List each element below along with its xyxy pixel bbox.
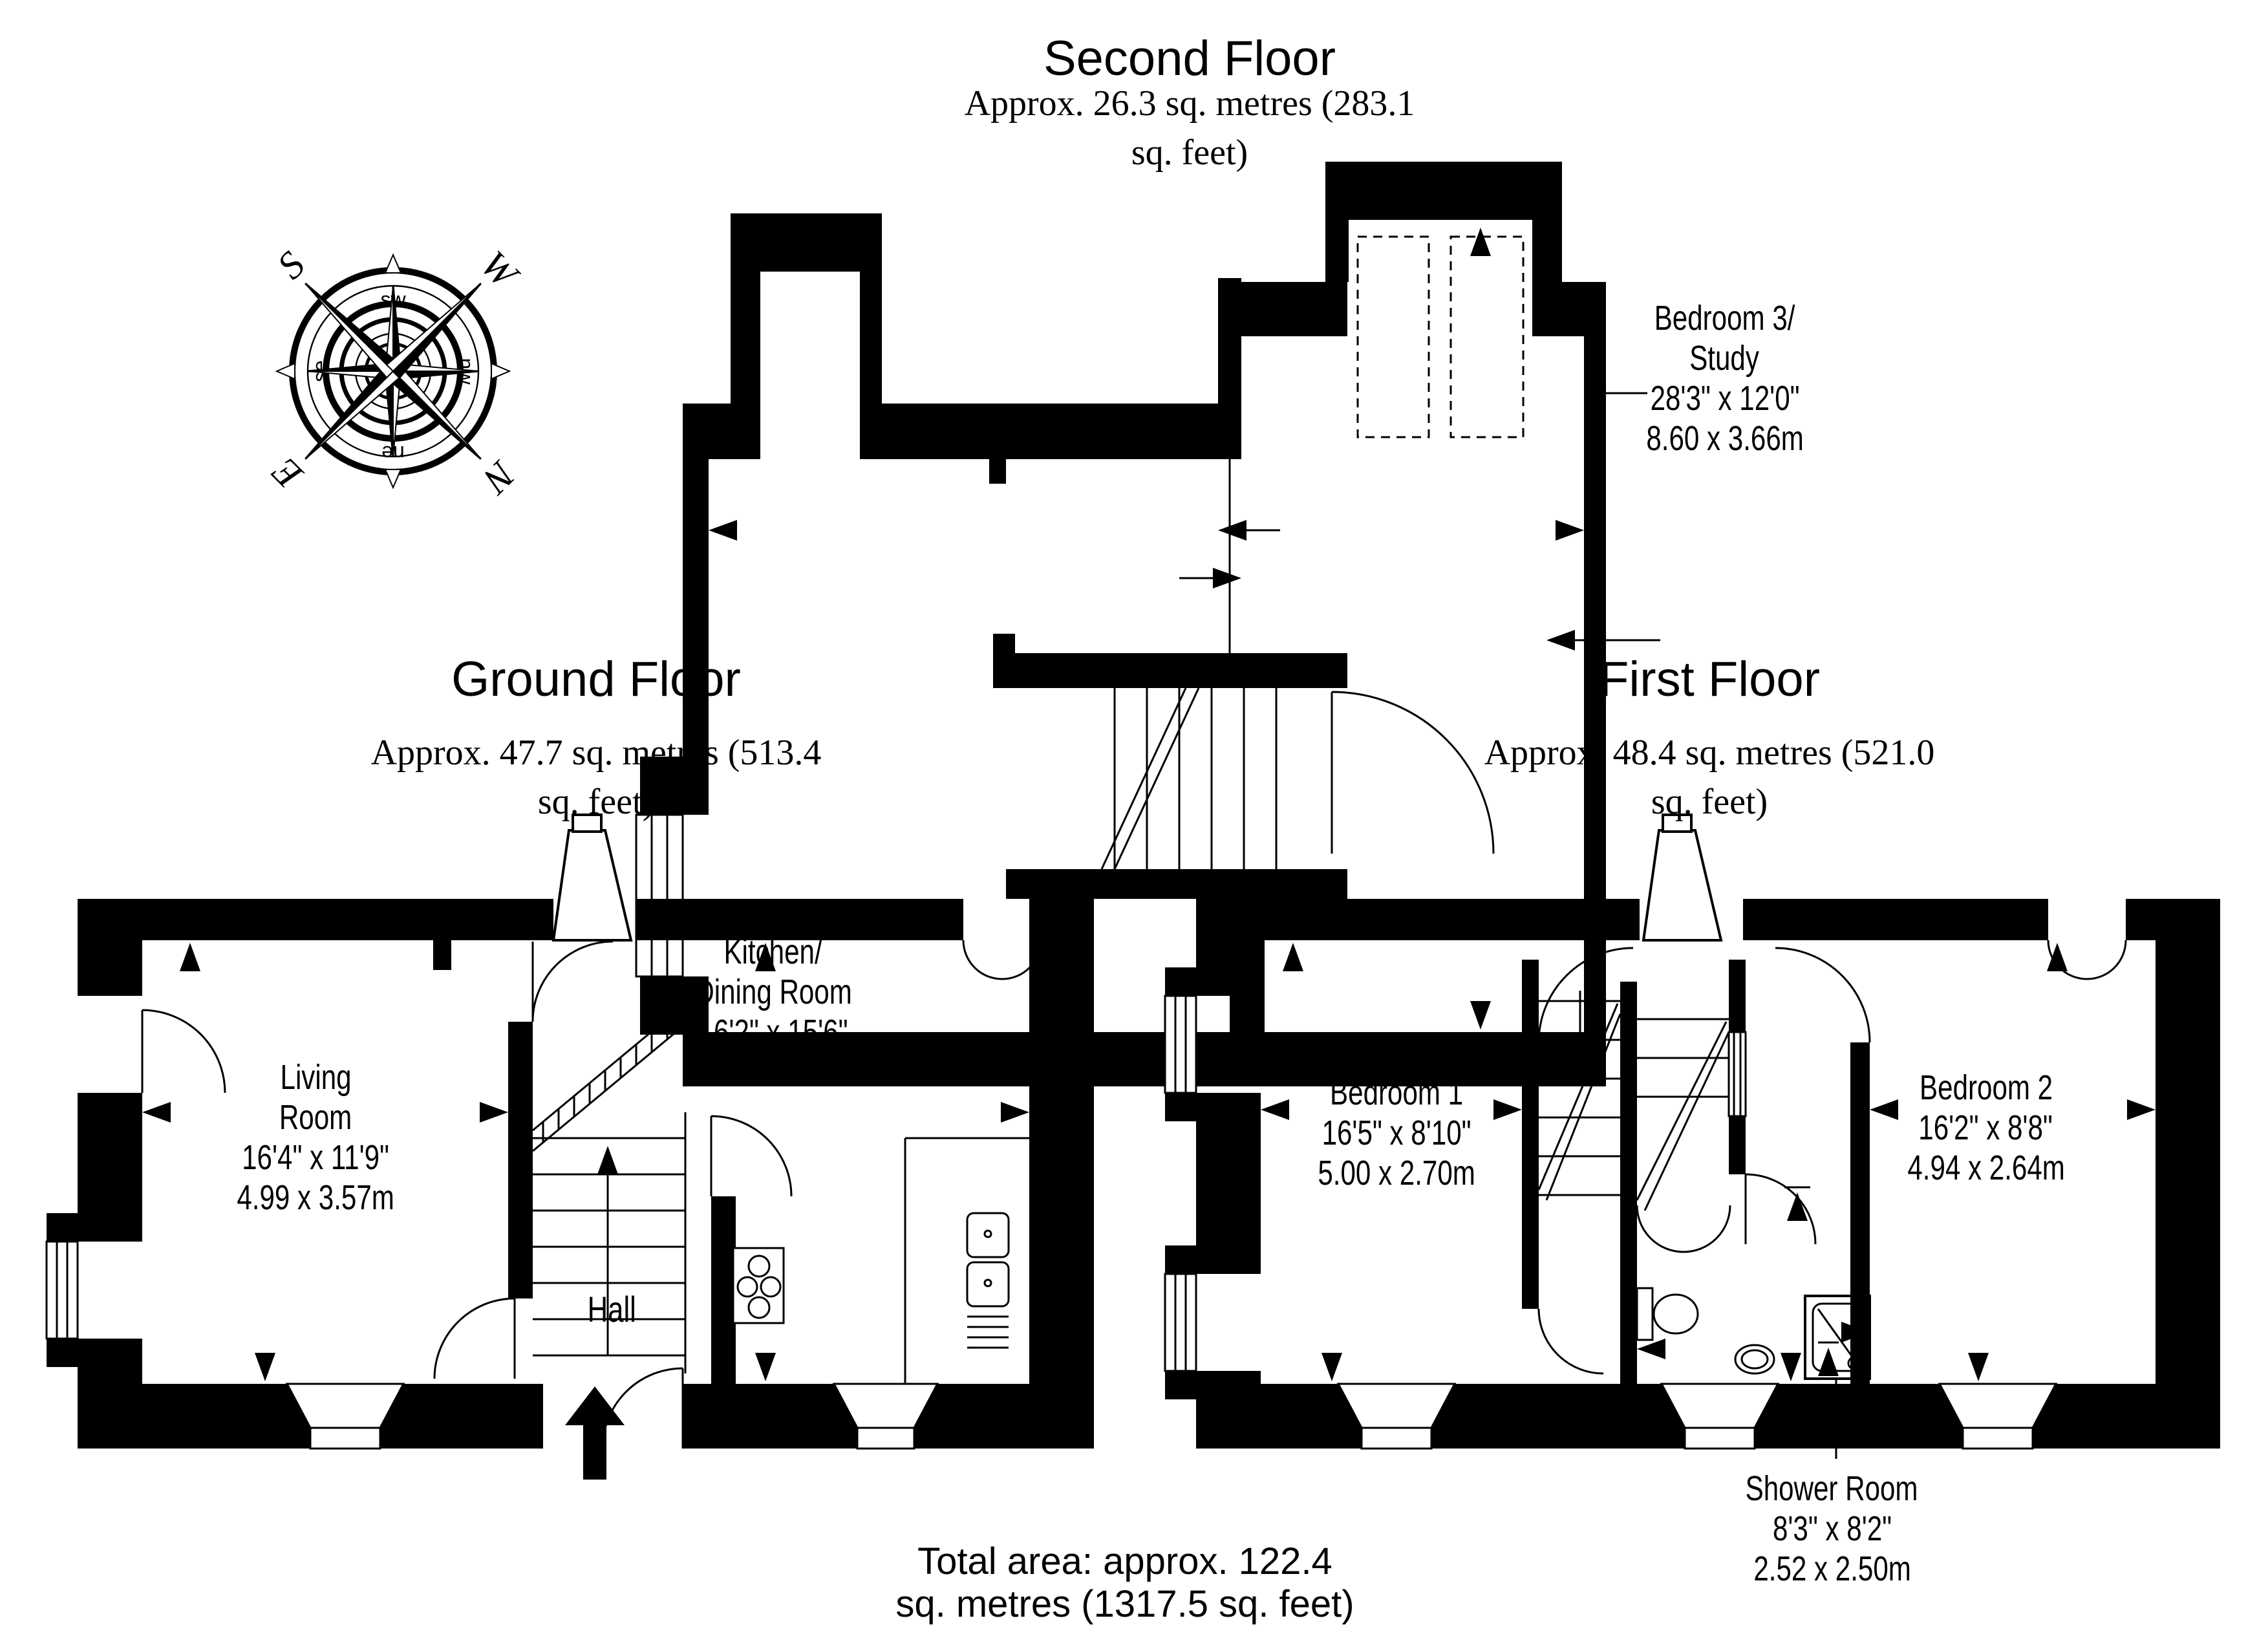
dimension-arrow-down — [255, 1353, 275, 1381]
wall-top — [1743, 899, 2048, 940]
bedroom3-label: Bedroom 3/ Study 28'3" x 12'0" 8.60 x 3.… — [1492, 299, 1958, 459]
sink-drain — [985, 1280, 991, 1286]
room-name: Bedroom 1 — [1164, 1073, 1629, 1114]
basin-bowl — [1742, 1350, 1768, 1368]
dimension-arrow-down — [1321, 1353, 1342, 1381]
kitchen-fittings — [733, 1138, 1029, 1384]
dimension-arrow-left — [1637, 1339, 1665, 1359]
sink-bowl — [967, 1213, 1009, 1257]
room-dims-metric: 4.94 x 2.64m — [1753, 1148, 2219, 1189]
wall-window-cap — [1165, 967, 1196, 996]
room-name: Kitchen/ — [540, 932, 1006, 973]
window-bay-west-lower — [47, 1242, 78, 1339]
room-dims-metric: 2.52 x 2.50m — [1599, 1549, 2065, 1589]
toilet-cistern — [1637, 1288, 1653, 1340]
room-dims-imperial: 16'2" x 8'8" — [1753, 1108, 2219, 1148]
first-floor-title: First Floor — [1477, 652, 1942, 709]
dimension-arrow-up — [2047, 943, 2068, 971]
entrance-arrow — [565, 1386, 625, 1480]
room-name: Study — [1492, 339, 1958, 379]
hall-label: Hall — [379, 1289, 844, 1330]
wall-window-cap — [47, 1339, 78, 1367]
ground-floor-area: Approx. 47.7 sq. metres (513.4 sq. feet) — [363, 732, 829, 776]
compass-label-east: E — [264, 450, 311, 497]
ground-floor-title: Ground Floor — [363, 652, 829, 709]
shower-room-fixtures — [1637, 1288, 1870, 1379]
compass-star — [217, 195, 568, 546]
dimension-arrow-right — [1213, 568, 1241, 588]
window-frame — [1165, 1274, 1196, 1371]
compass-label-sw: sw — [380, 288, 406, 311]
stair-rail — [1115, 688, 1199, 869]
dimension-arrow-right — [1556, 520, 1584, 541]
room-dims-metric: 4.99 x 3.57m — [83, 1178, 548, 1218]
wall-stair-core — [1729, 1116, 1746, 1174]
skylight-window — [1358, 237, 1429, 437]
wall-left — [78, 899, 142, 996]
living-room-label: Living Room 16'4" x 11'9" 4.99 x 3.57m — [83, 1058, 548, 1218]
room-dims-metric: 4.93 x 4.73m — [540, 1053, 1006, 1093]
room-dims-imperial: 8'3" x 8'2" — [1599, 1509, 2065, 1549]
dimension-arrow-down — [1968, 1353, 1989, 1381]
room-name: Room — [83, 1098, 548, 1138]
window-sill — [1963, 1428, 2033, 1449]
compass-rose: S W N E sw nw ne se — [217, 195, 568, 546]
shower-room-label: Shower Room 8'3" x 8'2" 2.52 x 2.50m — [1599, 1469, 2065, 1589]
room-dims-imperial: 28'3" x 12'0" — [1492, 379, 1958, 419]
sink-bowl — [967, 1262, 1009, 1306]
wall-left — [1196, 899, 1261, 996]
dimension-arrow-right — [1001, 1102, 1029, 1123]
compass-label-nw: nw — [455, 358, 478, 385]
window-frame — [47, 1242, 78, 1339]
wall-top — [860, 404, 1218, 459]
door-arc — [1637, 1205, 1684, 1252]
room-name: Shower Room — [1599, 1469, 2065, 1509]
dimension-arrow-up — [1283, 943, 1303, 971]
dimension-arrow-down — [1470, 1001, 1491, 1029]
dimension-arrow-up — [1470, 228, 1491, 256]
compass-label-ne: ne — [381, 442, 405, 465]
chimney-breast — [1643, 815, 1721, 940]
room-name: Dining Room — [540, 973, 1006, 1013]
wall — [1218, 282, 1347, 336]
compass-label-north: N — [473, 453, 524, 503]
entrance-door — [565, 1368, 683, 1480]
kitchen-label: Kitchen/ Dining Room 16'2" x 15'6" 4.93 … — [540, 932, 1006, 1093]
wall-stub — [993, 634, 1015, 688]
room-dims-metric: 5.00 x 2.70m — [1164, 1154, 1629, 1194]
chimney-breast — [553, 815, 631, 940]
dimension-arrow-left — [709, 520, 737, 541]
wall-window-cap — [1165, 1371, 1196, 1399]
dimension-arrow-up — [1818, 1348, 1839, 1376]
door-hall-kitchen — [711, 1116, 791, 1196]
second-floor-title: Second Floor — [957, 31, 1422, 88]
floorplan-page: S W N E sw nw ne se — [0, 0, 2268, 1604]
room-dims-metric: 8.60 x 3.66m — [1492, 419, 1958, 459]
window-sill — [857, 1428, 914, 1449]
dimension-arrow-left — [1218, 520, 1246, 541]
dimension-arrow-left — [1546, 630, 1575, 651]
door-arc — [1332, 692, 1493, 854]
chimney-flue — [1643, 830, 1721, 940]
room-name: Living — [83, 1058, 548, 1098]
stair-rail — [1637, 1022, 1726, 1200]
door-stairwell — [1332, 692, 1493, 854]
wall — [1532, 220, 1562, 282]
wall — [1325, 220, 1349, 282]
wall-stair-core — [1729, 960, 1746, 1032]
door-double-corridor — [1637, 1205, 1730, 1252]
wall-chimney — [731, 213, 882, 272]
room-name: Hall — [379, 1289, 844, 1330]
wall-right — [1029, 899, 1094, 1449]
door-arc — [1775, 948, 1870, 1042]
sink-drain — [985, 1231, 991, 1237]
total-area-label: Total area: approx. 122.4 sq. metres (13… — [892, 1542, 1358, 1627]
toilet-bowl — [1654, 1295, 1698, 1333]
window-sill — [1685, 1428, 1755, 1449]
door-arc — [603, 1368, 683, 1449]
first-floor-area: Approx. 48.4 sq. metres (521.0 sq. feet) — [1477, 732, 1942, 776]
dimension-arrow-down — [1781, 1353, 1801, 1381]
wall-top — [78, 899, 553, 940]
window-sill — [310, 1428, 380, 1449]
dimension-arrow-down — [755, 1353, 776, 1381]
floorplan-drawing: S W N E sw nw ne se — [0, 0, 2268, 1604]
door-arc — [711, 1116, 791, 1196]
room-dims-imperial: 16'5" x 8'10" — [1164, 1114, 1629, 1154]
wall-window-cap — [1165, 1245, 1196, 1274]
wall-window-cap — [47, 1213, 78, 1242]
window-sill — [1362, 1428, 1431, 1449]
door-arc — [1684, 1205, 1730, 1252]
room-name: Bedroom 2 — [1753, 1068, 2219, 1108]
wall-stairwell — [1006, 869, 1347, 899]
wall-stub — [989, 459, 1006, 484]
second-floor-stairs — [1102, 688, 1276, 869]
room-dims-imperial: 16'2" x 15'6" — [540, 1013, 1006, 1053]
wall-stairwell — [1006, 653, 1347, 688]
window-frame — [1729, 1032, 1746, 1116]
chimney-flue — [553, 830, 631, 940]
second-floor-area: Approx. 26.3 sq. metres (283.1 sq. feet) — [957, 83, 1422, 127]
dimension-arrow-up — [180, 943, 200, 971]
bedroom1-label: Bedroom 1 16'5" x 8'10" 5.00 x 2.70m — [1164, 1073, 1629, 1194]
door-arc-bedroom1 — [1539, 1309, 1603, 1374]
room-name: Bedroom 3/ — [1492, 299, 1958, 339]
wall-top — [1325, 162, 1562, 220]
compass-label-west: W — [473, 242, 528, 298]
door-arc — [2087, 940, 2126, 979]
compass-label-se: se — [308, 360, 332, 382]
internal-window-stair — [1729, 1032, 1746, 1116]
compass-point-major — [217, 195, 568, 546]
wall-stub — [433, 940, 451, 970]
wall-top — [1196, 899, 1640, 940]
stair-up-arrow — [597, 1146, 618, 1174]
room-dims-imperial: 16'4" x 11'9" — [83, 1138, 548, 1178]
window-bay-west-lower — [1165, 1274, 1196, 1371]
bedroom2-label: Bedroom 2 16'2" x 8'8" 4.94 x 2.64m — [1753, 1068, 2219, 1189]
compass-label-south: S — [269, 243, 313, 287]
